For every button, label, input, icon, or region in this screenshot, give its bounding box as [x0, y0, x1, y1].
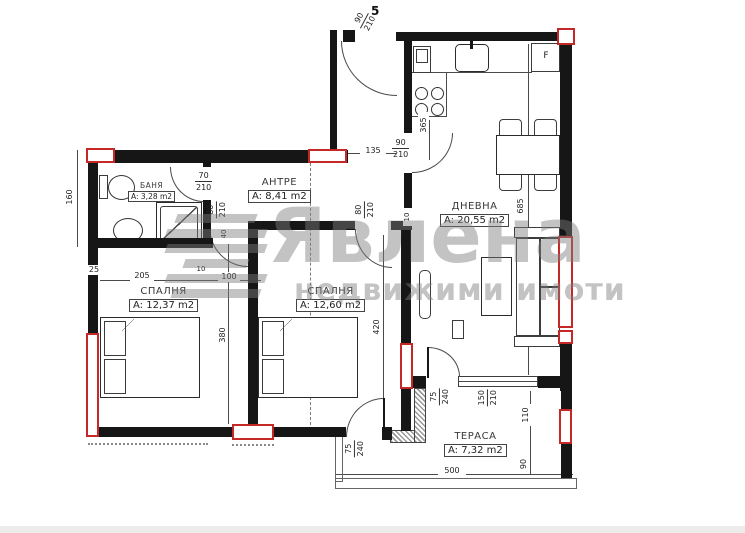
dim-line-160	[77, 150, 78, 247]
dim-380: 380	[217, 323, 228, 347]
dim-10-wall: 10	[194, 265, 208, 274]
room-label-terrace: ТЕРАСА A: 7,32 m2	[444, 431, 507, 457]
dim-135: 135	[360, 146, 386, 156]
living-area: A: 20,55 m2	[440, 214, 509, 227]
blanket-fold	[280, 319, 292, 331]
bedroom2-door-width: 80	[354, 205, 363, 215]
wall-bottom-bedrooms	[88, 427, 346, 437]
fraction-bar	[354, 440, 355, 457]
bedroom2-terrace-door-arc	[346, 398, 384, 437]
fraction-bar	[364, 201, 365, 218]
fraction-bar	[439, 388, 440, 405]
wall-bath-right-top	[203, 150, 211, 167]
wall-right-living-upper	[560, 41, 572, 236]
entry-area: A: 8,41 m2	[248, 190, 311, 203]
room-label-bedroom2: СПАЛНЯ A: 12,60 m2	[296, 286, 365, 312]
page-bottom-edge	[0, 526, 745, 533]
fraction-bar	[392, 148, 409, 149]
wall-corridor-left	[330, 30, 337, 151]
wall-right-terrace-a	[561, 391, 572, 409]
hall-living-door-arc	[412, 133, 453, 173]
wall-bedroom2-top	[258, 221, 355, 230]
bedroom2-area: A: 12,60 m2	[296, 299, 365, 312]
fraction-bar	[195, 181, 212, 182]
insulation-strip-window	[232, 441, 274, 446]
pillow	[104, 359, 126, 394]
living-name: ДНЕВНА	[452, 201, 498, 212]
window-living-right-small	[558, 330, 573, 344]
corner-marker-top-right	[557, 28, 575, 45]
bathroom-area: A: 3,28 m2	[128, 191, 175, 202]
window-bedroom1-left	[86, 333, 99, 437]
terrace-railing-left	[335, 432, 343, 482]
bathroom-door-size: 70 210	[196, 171, 211, 192]
dim-25: 25	[86, 265, 102, 275]
bath-door-height: 210	[196, 183, 211, 192]
hall-door-width: 90	[396, 138, 406, 147]
bathroom-name: БАНЯ	[140, 181, 163, 190]
terrace-bed-door-width: 75	[344, 444, 353, 454]
bedroom1-name: СПАЛНЯ	[140, 286, 186, 297]
wall-bedroom-divider	[248, 221, 258, 430]
sofa-back-cushion	[540, 238, 560, 287]
stove-burner-1	[415, 87, 428, 100]
blanket-fold	[122, 319, 134, 331]
hall-living-door-size: 90 210	[393, 138, 408, 159]
bedroom1-door-width: 80	[206, 205, 215, 215]
fraction-bar	[216, 201, 217, 218]
pillow	[262, 359, 284, 394]
fraction-bar	[487, 389, 488, 406]
window-living-terrace	[458, 376, 538, 387]
entry-name: АНТРЕ	[262, 177, 297, 188]
bedroom2-door-height: 210	[366, 202, 375, 217]
dim-365: 365	[418, 112, 429, 138]
fridge-label: F	[540, 49, 552, 63]
room-label-entry: АНТРЕ A: 8,41 m2	[248, 177, 311, 203]
sink-tap	[127, 241, 129, 248]
kitchen-cabinet-inner	[416, 49, 428, 63]
bedroom1-door-height: 210	[218, 202, 227, 217]
terrace-window-width: 150	[477, 390, 486, 405]
window-bedroom2-right	[400, 343, 413, 389]
dim-110: 110	[520, 404, 531, 426]
wall-top-kitchen	[396, 32, 562, 41]
kitchen-faucet	[470, 40, 473, 49]
wall-entry-stub	[343, 30, 355, 42]
living-terrace-door-arc	[428, 347, 460, 377]
entry-door-arc	[341, 41, 397, 96]
room-label-living: ДНЕВНА A: 20,55 m2	[440, 201, 509, 227]
bedroom2-terrace-door-leaf	[383, 398, 385, 437]
window-living-right	[558, 236, 573, 328]
bedroom2-door-arc	[355, 229, 392, 268]
insulation-strip-left	[88, 440, 208, 445]
bedroom1-door-size: 80 210	[206, 202, 227, 217]
wall-kitchen-left	[404, 41, 412, 133]
terrace-bed-door-height: 240	[356, 441, 365, 456]
radiator	[419, 270, 431, 319]
sofa-back-cushion	[540, 287, 560, 336]
dim-40: 40	[220, 224, 229, 244]
window-antre-left	[86, 148, 115, 163]
dim-500: 500	[438, 466, 466, 476]
terrace-window-size: 150 210	[477, 390, 498, 405]
terrace-liv-door-width: 75	[429, 392, 438, 402]
wall-living-bottom-right	[538, 376, 562, 388]
stove-burner-2	[431, 87, 444, 100]
terrace-living-door-size: 75 240	[429, 389, 450, 404]
room-label-bedroom1: СПАЛНЯ A: 12,37 m2	[129, 286, 198, 312]
dim-90: 90	[518, 455, 529, 473]
dim-420: 420	[371, 315, 382, 339]
dim-160: 160	[64, 186, 75, 208]
terrace-railing-bottom	[335, 478, 577, 489]
window-terrace-right	[559, 409, 572, 444]
sofa-seat	[516, 238, 540, 336]
living-terrace-door-leaf	[427, 347, 429, 378]
dining-table	[496, 135, 560, 175]
terrace-liv-door-height: 240	[441, 389, 450, 404]
tv-stand	[452, 320, 464, 339]
hall-door-height: 210	[393, 150, 408, 159]
coffee-table	[481, 257, 512, 316]
terrace-window-height: 210	[489, 390, 498, 405]
wall-bath-bottom	[88, 238, 213, 248]
shower-diagonal	[161, 207, 197, 241]
counter-edge-side	[446, 72, 447, 117]
bedroom2-name: СПАЛНЯ	[307, 286, 353, 297]
terrace-name: ТЕРАСА	[454, 431, 496, 442]
stove-burner-4	[431, 103, 444, 116]
wall-right-terrace-b	[561, 444, 572, 478]
sofa-armrest-bottom	[514, 336, 560, 347]
terrace-bedroom-door-size: 75 240	[344, 441, 365, 456]
dim-205: 205	[130, 271, 154, 281]
dim-10-living: 10	[403, 208, 412, 226]
bedroom2-door-size: 80 210	[354, 202, 375, 217]
bath-door-width: 70	[199, 171, 209, 180]
sofa-armrest-top	[514, 227, 560, 238]
floor-plan: F 5 90 210 70 210 90 210 80	[0, 0, 745, 533]
dim-685: 685	[515, 192, 526, 220]
window-bedrooms-bottom	[232, 424, 274, 440]
toilet-tank	[99, 175, 108, 199]
dim-100: 100	[218, 272, 240, 282]
terrace-parapet-vertical	[414, 388, 426, 443]
room-label-bathroom: БАНЯ A: 3,28 m2	[128, 181, 175, 202]
wall-bedroom2-right	[401, 227, 411, 431]
window-antre-right	[308, 149, 347, 163]
bedroom1-area: A: 12,37 m2	[129, 299, 198, 312]
terrace-area: A: 7,32 m2	[444, 444, 507, 457]
